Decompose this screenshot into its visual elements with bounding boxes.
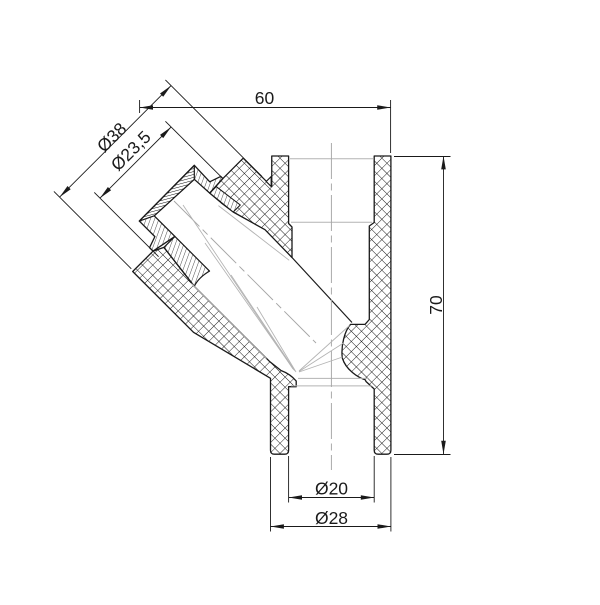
svg-text:70: 70	[426, 295, 446, 315]
svg-text:60: 60	[255, 88, 275, 108]
svg-text:Ø28: Ø28	[315, 508, 348, 528]
svg-text:Ø20: Ø20	[315, 479, 348, 499]
